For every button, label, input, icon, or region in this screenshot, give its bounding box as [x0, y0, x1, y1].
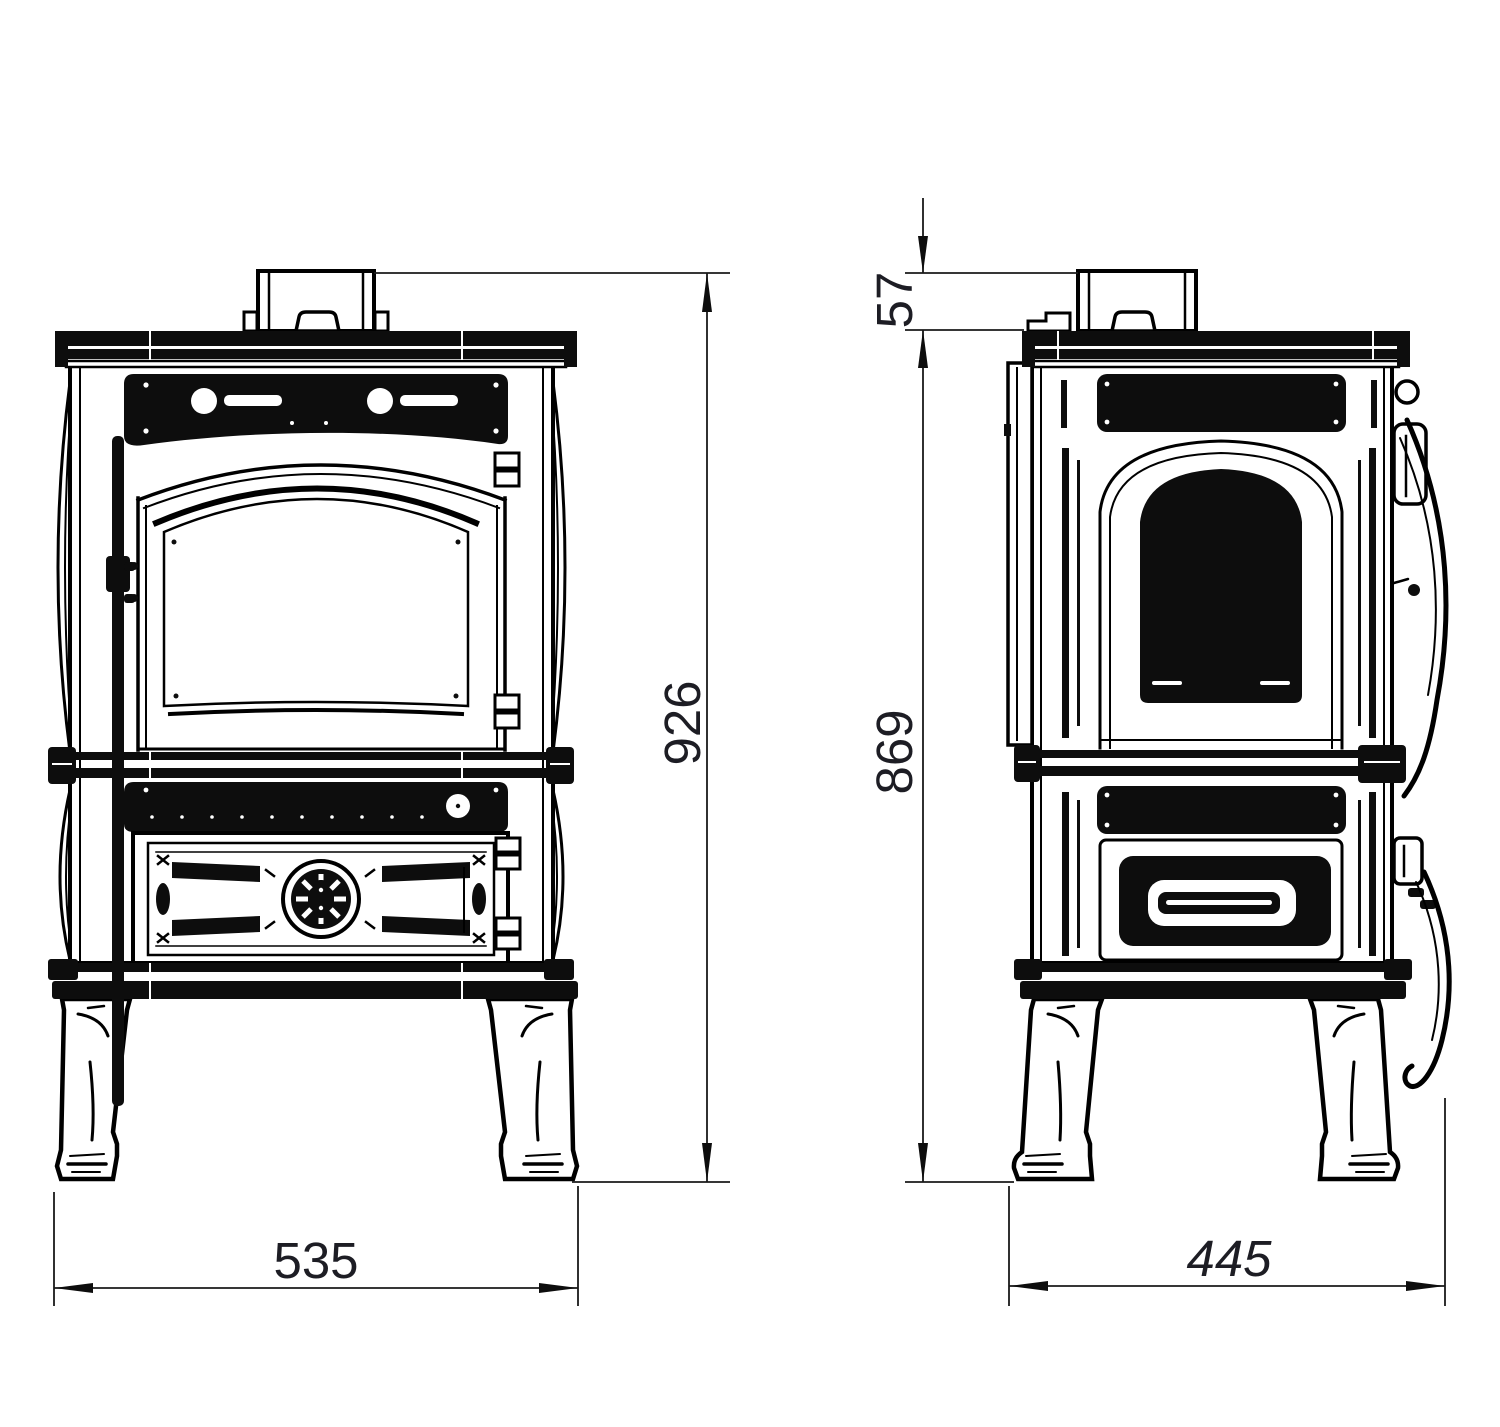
fire-door-hinge-bottom: [495, 695, 519, 728]
side-flue-collar: [1028, 271, 1196, 331]
stove-dimension-drawing: 926 57 869 535: [0, 0, 1500, 1427]
technical-drawing-canvas: 926 57 869 535: [0, 0, 1500, 1427]
front-ash-top-band: [124, 782, 508, 832]
dim-front-width: 535: [54, 1186, 578, 1306]
dim-label-depth: 445: [1186, 1230, 1272, 1287]
side-leg-back: [1310, 999, 1398, 1179]
air-control-knob-left: [191, 388, 217, 414]
front-top-plate: [55, 331, 577, 367]
side-upper-door-handle: [1394, 381, 1446, 796]
side-front-door-edge: [1004, 363, 1032, 745]
side-ash-top-band: [1097, 786, 1346, 834]
front-plinth: [48, 959, 578, 999]
side-view: [1004, 271, 1449, 1179]
side-leg-front: [1014, 999, 1102, 1179]
front-view: [48, 271, 578, 1179]
air-control-knob-right: [367, 388, 393, 414]
front-ash-door: [133, 833, 520, 963]
side-plinth: [1014, 959, 1412, 999]
air-control-slot-right: [400, 395, 458, 406]
side-top-panel: [1097, 374, 1346, 432]
dim-flue-collar-height: 57: [866, 198, 1078, 330]
dim-label-flue-height: 57: [866, 272, 923, 329]
ash-door-hinge-top: [496, 838, 520, 869]
dim-body-height: 869: [866, 330, 1014, 1182]
ash-door-hinge-bottom: [496, 918, 520, 949]
front-leg-right: [488, 999, 577, 1179]
side-top-plate: [1022, 331, 1410, 367]
front-flue-collar: [244, 271, 388, 331]
fire-door-hinge-top: [495, 453, 519, 486]
dim-label-overall-height: 926: [654, 680, 711, 765]
side-window-dark-panel: [1140, 469, 1302, 703]
dim-label-front-width: 535: [273, 1232, 358, 1289]
dim-label-body-height: 869: [866, 709, 923, 794]
side-lower-panel: [1100, 840, 1342, 960]
air-control-slot-left: [224, 395, 282, 406]
ash-door-rosette-ornament: [283, 861, 359, 937]
